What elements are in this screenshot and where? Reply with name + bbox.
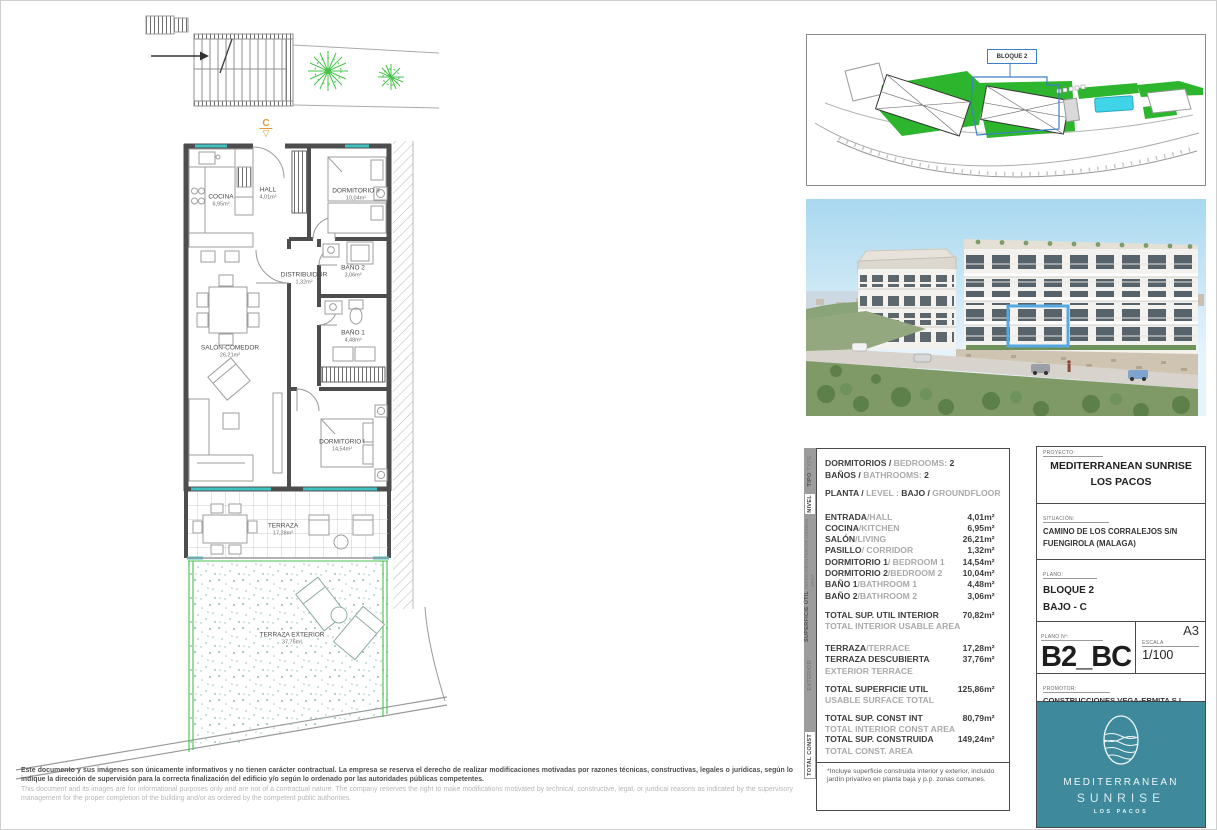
- area-row: SALÓN/LIVING26,21m²: [825, 534, 1001, 545]
- person: [1067, 360, 1071, 372]
- brand-logo-block: MEDITERRANEAN SUNRISE LOS PACOS: [1037, 702, 1205, 827]
- plant-drawing: [308, 51, 348, 91]
- room-label-cocina: COCINA6,95m²: [208, 194, 233, 209]
- side-tab-superficie-util: SUPERFICIE ÚTIL INTERIOR/INTERIOR USABLE…: [804, 515, 816, 646]
- sunrise-logo-icon: [1092, 710, 1150, 772]
- room-label-distribuidor: DISTRIBUIDOR1,32m²: [281, 272, 328, 287]
- room-label-terraza-exterior: TERRAZA EXTERIOR37,76m²: [259, 632, 324, 647]
- plant-drawing: [378, 64, 404, 90]
- room-label-terraza: TERRAZA17,28m²: [268, 523, 298, 538]
- table-footnote: *Incluye superficie construida interior …: [817, 762, 1009, 791]
- sheet-size: A3: [1142, 624, 1199, 638]
- pool-drawing: [1095, 96, 1134, 113]
- stair-direction-arrow: [151, 52, 209, 61]
- room-label-bano-2: BAÑO 23,06m²: [341, 265, 365, 280]
- scale-value: 1/100: [1142, 649, 1199, 662]
- total-const: TOTAL SUP. CONSTRUIDA149,24m² TOTAL CONS…: [825, 734, 1001, 755]
- total-interior: TOTAL SUP. UTIL INTERIOR70,82m² TOTAL IN…: [825, 610, 1001, 631]
- side-tab-nivel: NIVEL: [804, 493, 816, 515]
- exterior-areas: TERRAZA/TERRACE17,28m² TERRAZA DESCUBIER…: [825, 643, 1001, 676]
- plan-sheet: COCINA6,95m² HALL4,01m² DORMITORIO II10,…: [0, 0, 1217, 830]
- title-block-location: SITUACIÓN: CAMINO DE LOS CORRALEJOS S/N …: [1037, 504, 1205, 560]
- area-row: PASILLO/ CORRIDOR1,32m²: [825, 545, 1001, 556]
- room-label-hall: HALL4,01m²: [259, 187, 276, 202]
- building-render-photo: [806, 199, 1206, 416]
- title-block-number: PLANO Nº: B2_BC A3 ESCALA 1/100: [1037, 622, 1205, 674]
- room-label-dormitorio-2: DORMITORIO II10,04m²: [332, 188, 380, 203]
- title-block-project: PROYECTO: MEDITERRANEAN SUNRISE LOS PACO…: [1037, 447, 1205, 504]
- logo-text-line3: LOS PACOS: [1094, 809, 1149, 815]
- room-label-bano-1: BAÑO 14,48m²: [341, 330, 365, 345]
- room-label-salon: SALÓN-COMEDOR26,21m²: [201, 345, 259, 360]
- table-side-tabs: TIPO TYPE NIVEL SUPERFICIE ÚTIL INTERIOR…: [804, 448, 816, 811]
- area-row: DORMITORIO 1/ BEDROOM 114,54m²: [825, 557, 1001, 568]
- side-tab-total-const: TOTAL CONST: [804, 731, 816, 779]
- total-usable: TOTAL SUPERFICIE UTIL125,86m² USABLE SUR…: [825, 684, 1001, 705]
- side-tab-tipo: TIPO TYPE: [804, 448, 816, 493]
- project-title: MEDITERRANEAN SUNRISE: [1043, 460, 1199, 473]
- area-row: BAÑO 1/BATHROOM 14,48m²: [825, 579, 1001, 590]
- logo-text-line2: SUNRISE: [1077, 791, 1165, 805]
- area-row: ENTRADA/HALL4,01m²: [825, 512, 1001, 523]
- title-block: PROYECTO: MEDITERRANEAN SUNRISE LOS PACO…: [1036, 446, 1206, 828]
- section-arrow-icon: ▽: [259, 129, 272, 137]
- area-row: DORMITORIO 2/BEDROOM 210,04m²: [825, 568, 1001, 579]
- block-2-callout: BLOQUE 2: [987, 49, 1037, 64]
- logo-text-line1: MEDITERRANEAN: [1063, 777, 1178, 788]
- side-tab-exterior: EXTERIOR: [804, 646, 816, 704]
- area-row: COCINA/KITCHEN6,95m²: [825, 523, 1001, 534]
- area-summary-table: TIPO TYPE NIVEL SUPERFICIE ÚTIL INTERIOR…: [804, 448, 1009, 811]
- title-block-plan: PLANO: BLOQUE 2 BAJO - C: [1037, 560, 1205, 622]
- disclaimer-english: This document and its images are for inf…: [21, 786, 793, 803]
- total-const-int: TOTAL SUP. CONST INT80,79m² TOTAL INTERI…: [825, 713, 1001, 734]
- area-row: BAÑO 2/BATHROOM 23,06m²: [825, 591, 1001, 602]
- room-label-dormitorio-1: DORMITORIO I14,54m²: [319, 439, 365, 454]
- legal-disclaimer: Este documento y sus imágenes son únicam…: [21, 767, 793, 803]
- table-content: DORMITORIOS / BEDROOMS: 2 BAÑOS / BATHRO…: [816, 448, 1010, 811]
- title-block-developer: PROMOTOR: CONSTRUCCIONES VEGA-ERMITA S.L…: [1037, 674, 1205, 702]
- plan-code: B2_BC: [1041, 643, 1131, 671]
- disclaimer-spanish: Este documento y sus imágenes son únicam…: [21, 767, 793, 784]
- section-marker-c: C ▽: [259, 119, 272, 137]
- floor-plan-drawing: [1, 1, 451, 791]
